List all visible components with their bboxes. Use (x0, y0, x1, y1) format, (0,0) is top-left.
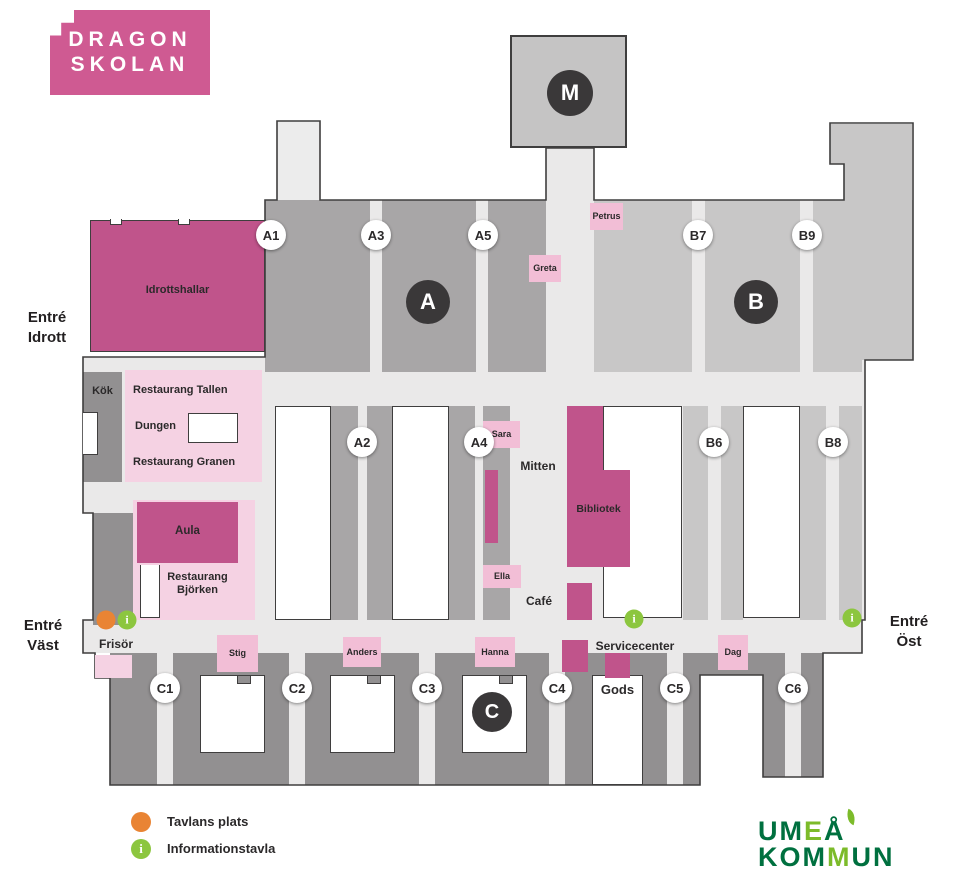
corridor-badge-a5: A5 (468, 220, 498, 250)
corridor-badge-c2: C2 (282, 673, 312, 703)
logo-seg: UN (852, 842, 895, 872)
info-glyph: i (139, 841, 143, 857)
umea-kommun-logo: UMEÅ KOMMUN (758, 818, 895, 871)
room-label-anders: Anders (343, 637, 381, 667)
idrottshallar-notch-1 (110, 219, 122, 225)
c-courtyard-2-notch (367, 676, 381, 684)
logo-seg: M (827, 842, 852, 872)
c-courtyard-1 (200, 675, 265, 753)
room-label-petrus: Petrus (590, 203, 623, 230)
legend-board-location-icon (131, 812, 151, 832)
aula-label: Aula (137, 525, 238, 538)
corridor-badge-c3: C3 (412, 673, 442, 703)
corridor-badge-b7: B7 (683, 220, 713, 250)
dragonskolan-floor-plan: DRAGON SKOLAN M (0, 0, 960, 894)
mitten-label: Mitten (510, 460, 566, 474)
room-label-ella: Ella (483, 565, 521, 588)
idrottshallar-notch-2 (178, 219, 190, 225)
corridor-badge-c5: C5 (660, 673, 690, 703)
legend-board-location-label: Tavlans plats (167, 814, 248, 829)
info-board-icon-west: i (118, 611, 137, 630)
frisor-room (95, 655, 132, 678)
entrance-vast-label: Entré Väst (12, 616, 74, 655)
kommun-logo-line1: UMEÅ (758, 818, 895, 844)
gods-label: Gods (592, 683, 643, 698)
a-courtyard-2 (392, 406, 449, 620)
corridor-badge-b9: B9 (792, 220, 822, 250)
entrance-idrott-label: Entré Idrott (16, 308, 78, 347)
corridor-badge-c1: C1 (150, 673, 180, 703)
restaurang-granen-label: Restaurang Granen (133, 456, 263, 469)
room-label-dag: Dag (718, 635, 748, 670)
b-courtyard (743, 406, 800, 618)
kok-label: Kök (83, 385, 122, 398)
c-courtyard-3-notch (499, 676, 513, 684)
west-edge-notch (83, 412, 98, 455)
corridor-badge-b6: B6 (699, 427, 729, 457)
section-m-badge: M (547, 70, 593, 116)
room-label-hanna: Hanna (475, 637, 515, 667)
restaurang-bjorken-label: Restaurang Björken (150, 571, 245, 596)
section-a-badge: A (406, 280, 450, 324)
bibliotek-room-upper (567, 406, 603, 470)
board-location-icon (97, 611, 116, 630)
entrance-ost-label: Entré Öst (878, 612, 940, 651)
room-label-greta: Greta (529, 255, 561, 282)
logo-seg: KOM (758, 842, 827, 872)
info-board-icon-east: i (843, 609, 862, 628)
section-b-badge: B (734, 280, 778, 324)
dungen-box (188, 413, 238, 443)
servicecenter-room-2 (605, 653, 630, 678)
legend-info-board-icon: i (131, 839, 151, 859)
frisor-label: Frisör (94, 638, 138, 652)
info-glyph: i (632, 612, 635, 627)
c-courtyard-2 (330, 675, 395, 753)
kommun-logo-line2: KOMMUN (758, 844, 895, 870)
corridor-badge-a2: A2 (347, 427, 377, 457)
info-glyph: i (125, 613, 128, 628)
idrottshallar-label: Idrottshallar (90, 284, 265, 297)
bibliotek-room-lower (567, 470, 630, 567)
corridor-badge-a3: A3 (361, 220, 391, 250)
legend-info-board-label: Informationstavla (167, 841, 275, 856)
cafe-room (567, 583, 592, 620)
room-label-stig: Stig (217, 635, 258, 672)
restaurang-tallen-label: Restaurang Tallen (133, 384, 253, 397)
info-board-icon-center: i (625, 610, 644, 629)
servicecenter-label: Servicecenter (580, 640, 690, 654)
corridor-badge-b8: B8 (818, 427, 848, 457)
info-glyph: i (850, 611, 853, 626)
corridor-badge-a4: A4 (464, 427, 494, 457)
corridor-badge-c4: C4 (542, 673, 572, 703)
dungen-label: Dungen (135, 420, 195, 433)
section-c-badge: C (472, 692, 512, 732)
bibliotek-label: Bibliotek (567, 503, 630, 515)
a-courtyard-1 (275, 406, 331, 620)
c-courtyard-1-notch (237, 676, 251, 684)
a4-pink-strip (485, 470, 498, 543)
cafe-label: Café (516, 595, 562, 609)
corridor-badge-c6: C6 (778, 673, 808, 703)
corridor-badge-a1: A1 (256, 220, 286, 250)
